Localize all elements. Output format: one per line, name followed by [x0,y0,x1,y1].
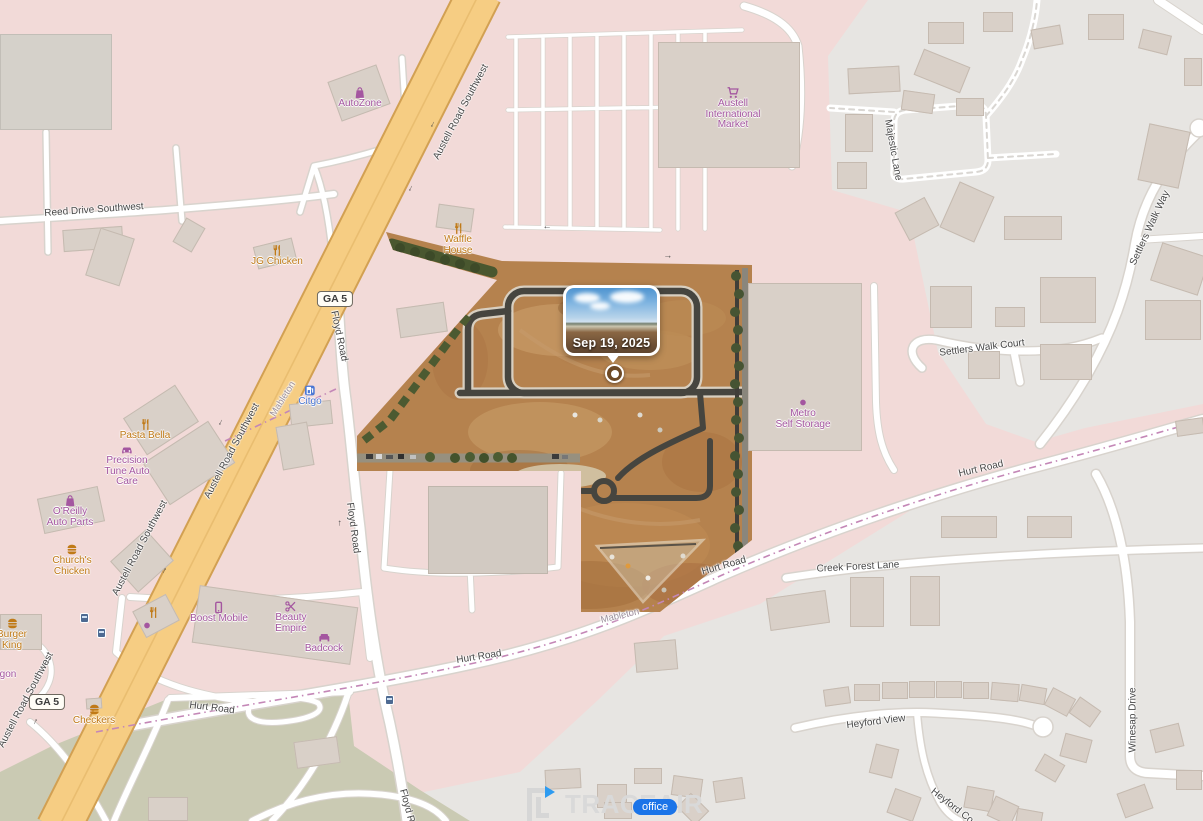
route-shield: GA 5 [317,291,353,307]
poi-pasta-bella: Pasta Bella [120,418,171,442]
poi-precision: PrecisionTune AutoCare [104,443,149,488]
poi-dot [141,619,154,632]
route-shield: GA 5 [29,694,65,710]
one-way-arrow-icon: → [663,250,673,261]
poi-church-s: Church'sChicken [52,543,91,577]
dot-dot-icon [141,619,154,632]
road-label: Heyford View [846,713,906,731]
road-label: Austell Road Southwest [431,63,491,162]
road-label: Hurt Road [701,554,748,577]
bus-stop-icon [385,695,394,705]
poi-metro: MetroSelf Storage [775,396,830,430]
one-way-arrow-icon: → [428,119,441,132]
photo-popup[interactable]: Sep 19, 2025 [563,285,660,356]
one-way-arrow-icon: → [216,417,229,430]
one-way-arrow-icon: → [339,354,350,364]
road-label: Mableton [268,380,298,419]
road-label: Winesap Drive [1128,687,1139,752]
road-label: Majestic Lane [882,119,904,182]
poi-gon: gon [0,670,16,681]
map-canvas[interactable]: AutoZoneWaffleHouseAustellInternationalM… [0,0,1203,821]
one-way-arrow-icon: → [542,224,552,235]
bus-stop-icon [97,628,106,638]
road-label: Settlers Walk Court [939,337,1025,358]
poi-beauty: BeautyEmpire [275,600,307,634]
road-label: Creek Forest Lane [816,559,899,574]
office-site-chip[interactable]: office [633,799,677,815]
road-label: Austell Road Southwest [202,402,262,501]
poi-burger: BurgerKing [0,617,27,651]
dot-restaurant-icon [147,606,160,619]
poi-citgo: Citgo [298,384,321,408]
road-label: Floyd Road [397,788,421,821]
poi-autozone: AutoZone [338,86,381,110]
poi-boost-mobile: Boost Mobile [190,601,248,625]
poi-dot [147,606,160,619]
poi-badcock: Badcock [305,631,343,655]
traceair-flag-icon [527,784,557,821]
road-label: Floyd Road [344,502,362,554]
site-marker[interactable] [605,364,624,383]
one-way-arrow-icon: → [333,518,344,528]
bus-stop-icon [80,613,89,623]
one-way-arrow-icon: → [157,564,170,577]
road-label: Austell Road Southwest [110,499,170,598]
road-label: Hurt Road [189,700,236,716]
poi-checkers: Checkers [73,703,115,727]
traceair-logo[interactable]: TRACEAIR [527,784,703,821]
road-label: Mableton [600,606,641,626]
poi-jg-chicken: JG Chicken [251,244,303,268]
road-label: Heyford Co [929,786,976,821]
road-label: Hurt Road [958,459,1005,480]
poi-waffle: WaffleHouse [444,222,473,256]
photo-date-label: Sep 19, 2025 [566,336,657,350]
poi-o-reilly: O'ReillyAuto Parts [47,494,94,528]
poi-austell: AustellInternationalMarket [705,86,760,131]
one-way-arrow-icon: → [28,715,41,728]
road-label: Hurt Road [456,648,503,666]
one-way-arrow-icon: → [406,183,419,196]
road-label: Reed Drive Southwest [44,201,144,219]
photo-thumbnail[interactable]: Sep 19, 2025 [566,288,657,353]
road-label: Settlers Walk Way [1128,189,1172,267]
labels-layer: AutoZoneWaffleHouseAustellInternationalM… [0,0,1203,821]
